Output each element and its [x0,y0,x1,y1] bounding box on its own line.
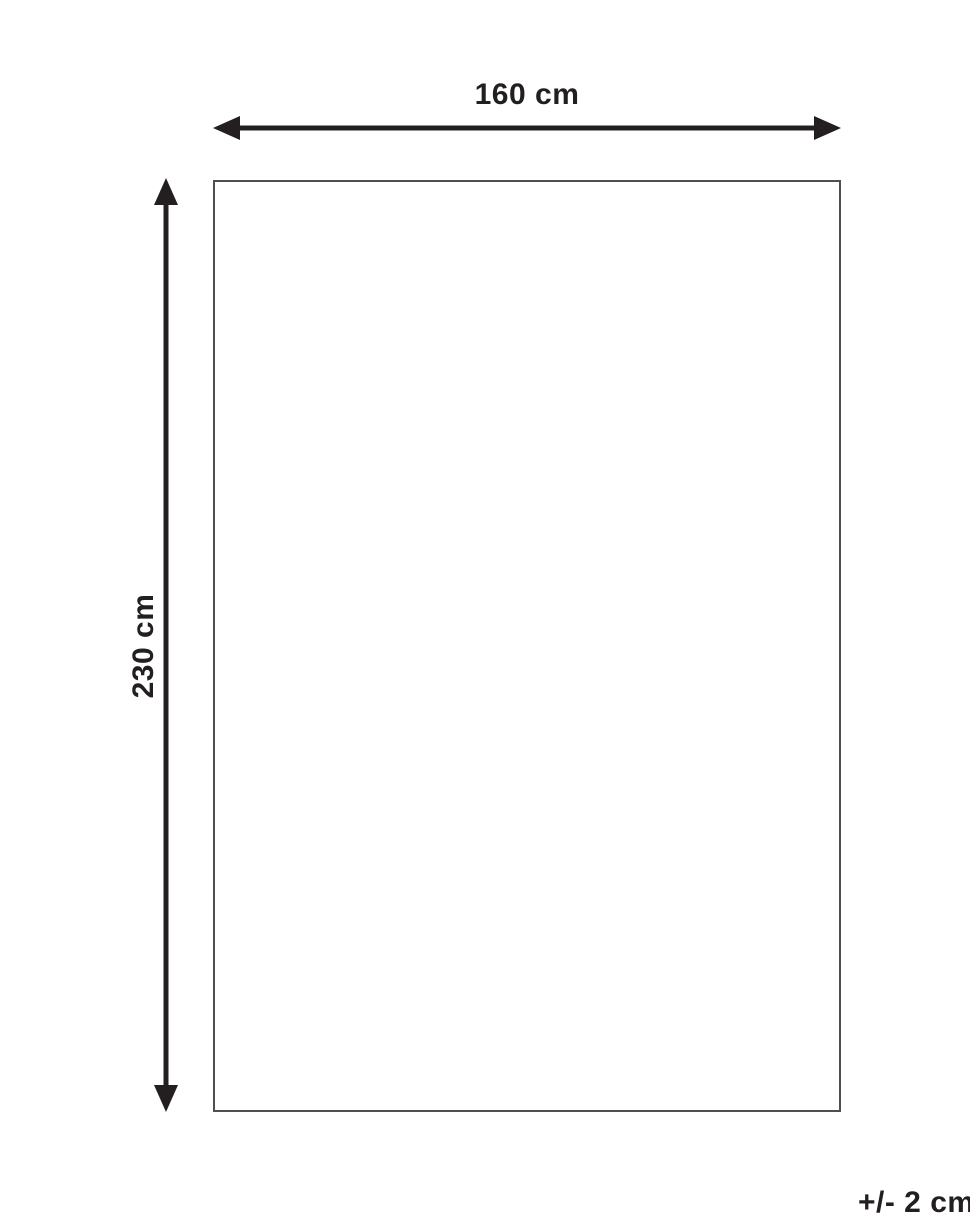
bottom-arrowhead-icon [154,1085,178,1112]
height-dimension-label: 230 cm [128,576,160,716]
tolerance-label: +/- 2 cm [858,1186,970,1213]
left-arrowhead-icon [213,116,240,140]
right-arrowhead-icon [814,116,841,140]
width-dimension-label: 160 cm [213,78,841,112]
top-arrowhead-icon [154,178,178,205]
product-outline-rectangle [213,180,841,1112]
width-dimension-arrow [213,112,841,144]
dimension-diagram: 160 cm 230 cm +/- 2 cm [0,0,970,1213]
